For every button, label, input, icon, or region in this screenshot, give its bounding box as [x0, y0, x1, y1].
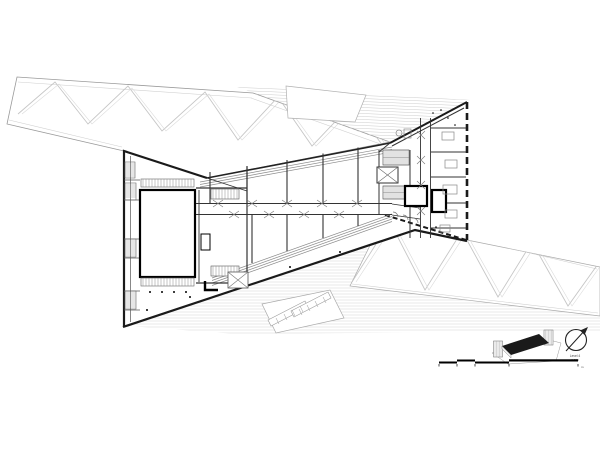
- axon-tower-left: [494, 341, 503, 357]
- legend: Level 4 1:500 m: [439, 327, 588, 369]
- floorplan-drawing: Level 4 1:500 m: [0, 0, 600, 450]
- service-box: [201, 234, 210, 250]
- roof-skylight: [286, 86, 366, 122]
- main-hall: [140, 190, 195, 277]
- key-plan-axon: [492, 330, 561, 364]
- floorplan-sheet: Level 4 1:500 m: [0, 0, 600, 450]
- scale-segment: [475, 362, 509, 364]
- scale-ticks: [439, 364, 578, 367]
- scale-segment: [439, 362, 457, 364]
- wing-stair-1: [383, 150, 409, 165]
- scale-unit-label: m: [581, 365, 584, 369]
- core-room: [405, 186, 427, 206]
- lift-shaft: [228, 272, 248, 288]
- roof-skylight-stairs: [262, 290, 344, 333]
- scale-segment: [509, 359, 578, 361]
- scale-bar: m: [439, 359, 584, 369]
- core-room: [432, 190, 446, 212]
- north-arrow: Level 4 1:500: [566, 327, 589, 362]
- stair-run-top: [211, 189, 239, 199]
- scale-segment: [457, 360, 475, 362]
- wing-shaft: [377, 167, 398, 183]
